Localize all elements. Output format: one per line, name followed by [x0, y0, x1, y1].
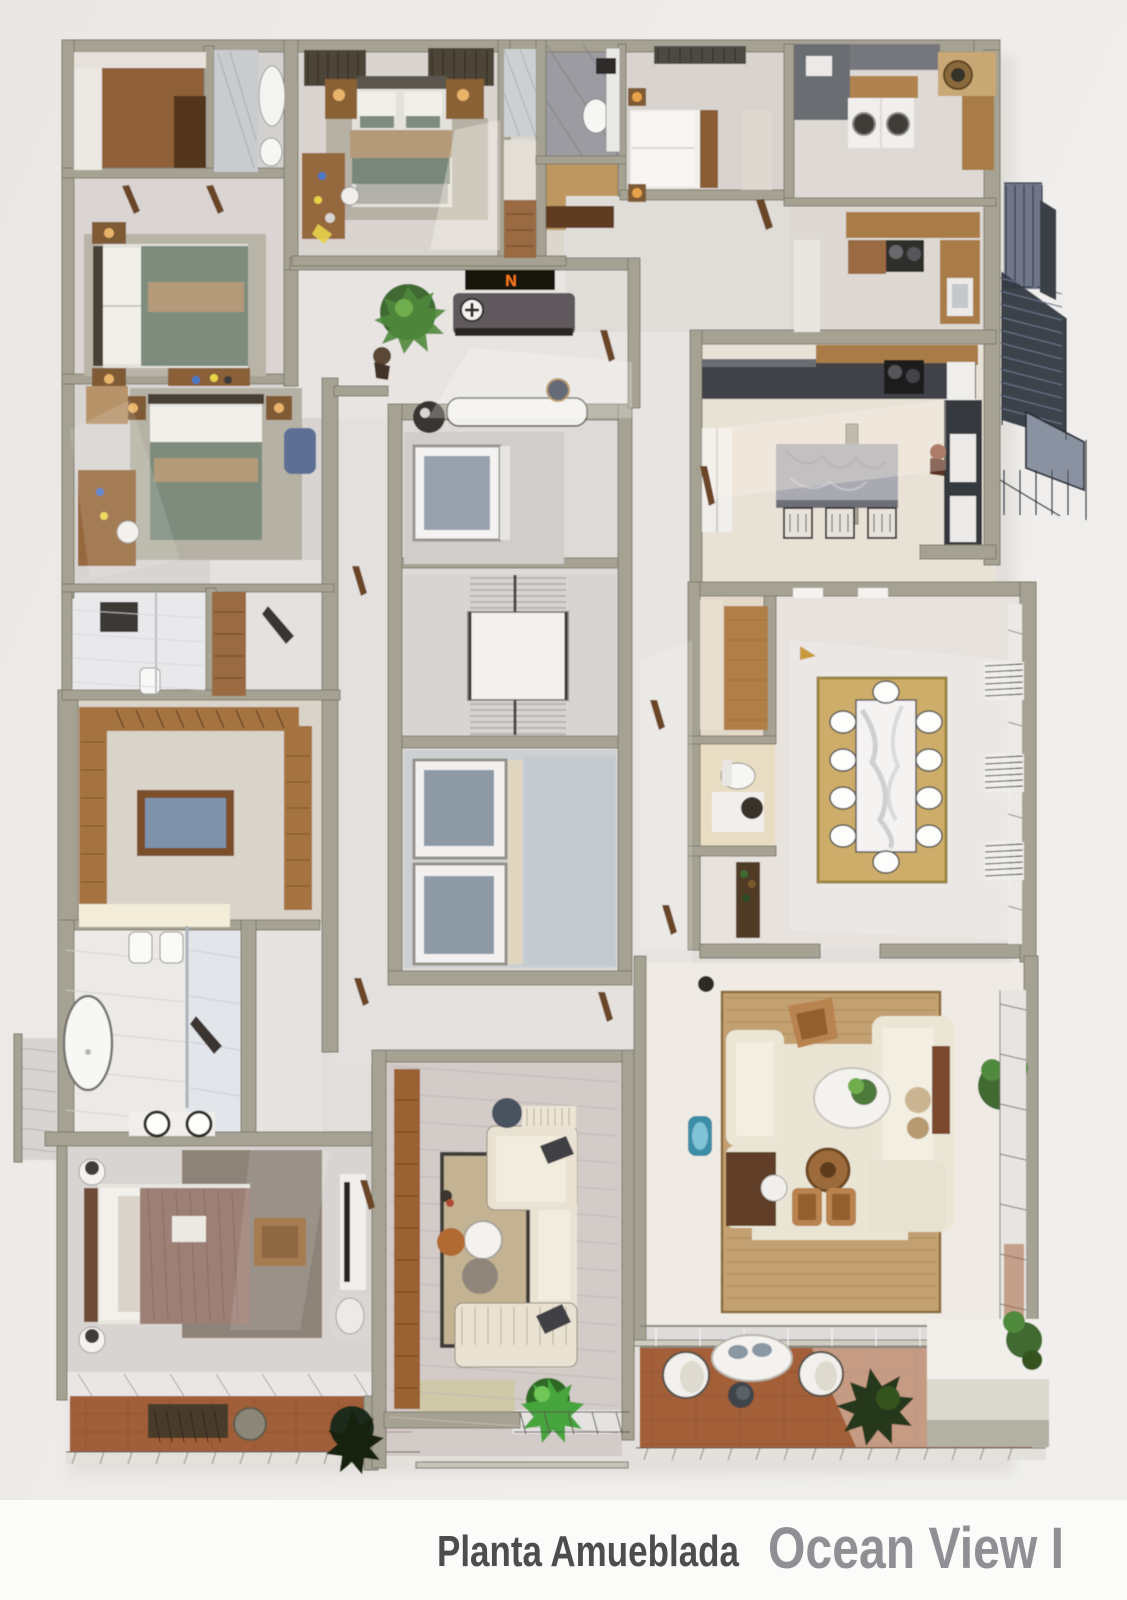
svg-text:Ocean View I: Ocean View I	[768, 1516, 1064, 1581]
svg-text:Planta Amueblada: Planta Amueblada	[437, 1527, 739, 1576]
svg-text:N: N	[505, 273, 517, 290]
